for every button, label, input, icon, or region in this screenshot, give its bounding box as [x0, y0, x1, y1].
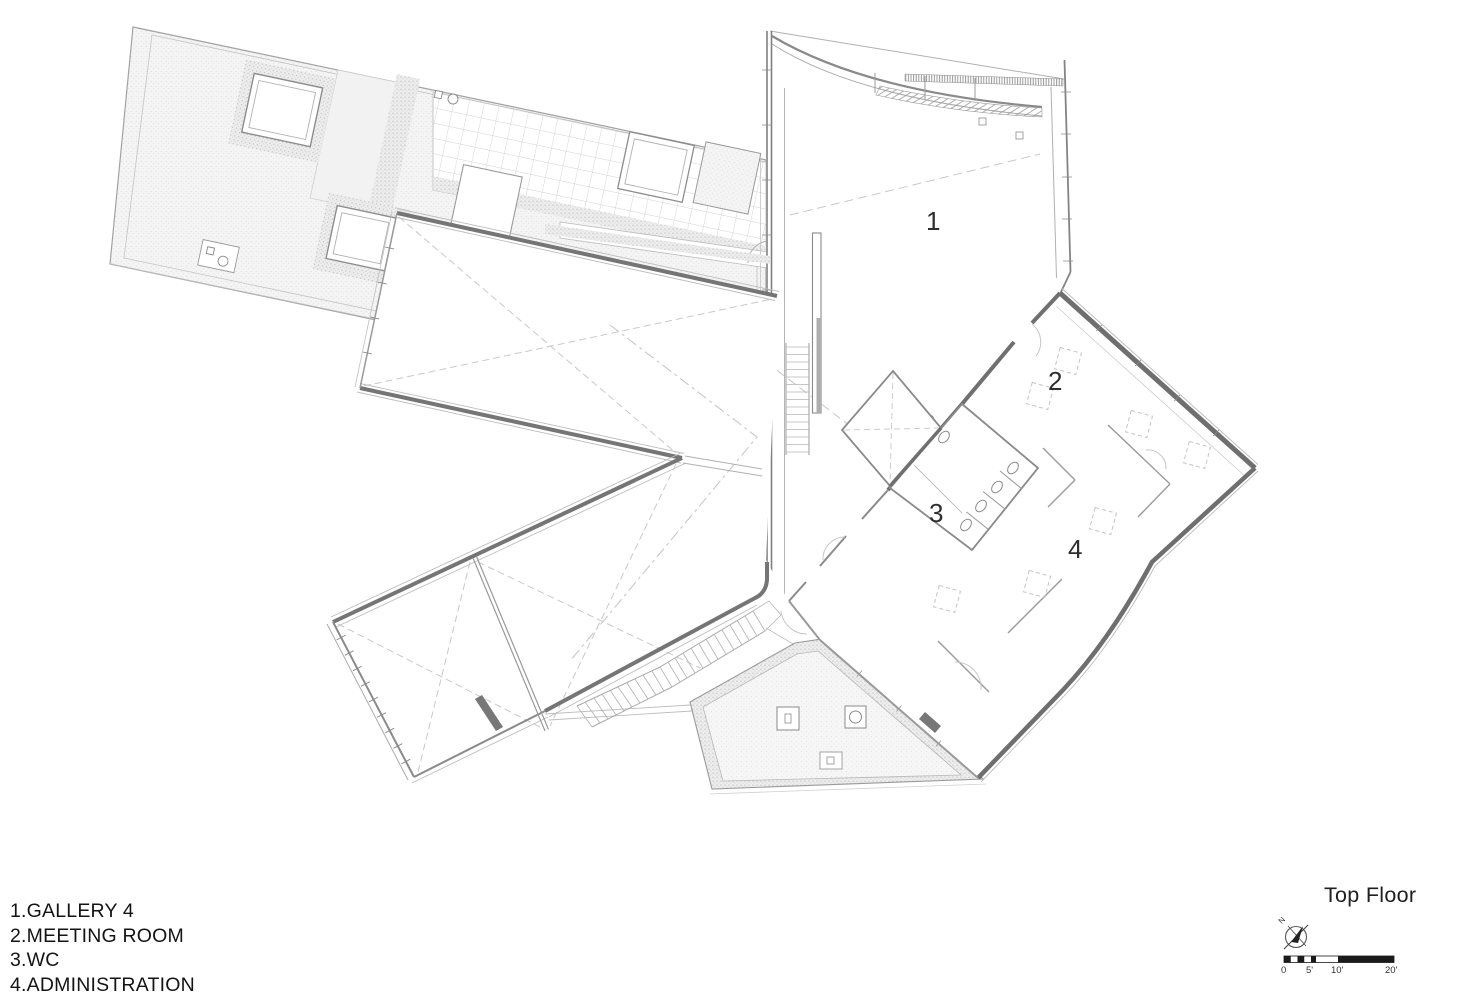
- floor-plan-sheet: 1 2 3 4 1.GALLERY 4 2.MEETING ROOM 3.WC …: [0, 0, 1459, 999]
- legend-item-administration: 4.ADMINISTRATION: [10, 973, 195, 998]
- scale-bar: [1284, 956, 1394, 963]
- legend: 1.GALLERY 4 2.MEETING ROOM 3.WC 4.ADMINI…: [10, 899, 195, 998]
- room-label-administration: 4: [1068, 534, 1083, 565]
- room-label-meeting-room: 2: [1048, 366, 1063, 397]
- scale-label-20: 20': [1385, 965, 1397, 976]
- room-label-gallery: 1: [926, 206, 941, 237]
- sheet-title: Top Floor: [1324, 883, 1416, 908]
- north-arrow-icon: [1284, 925, 1308, 949]
- room-label-wc: 3: [929, 498, 944, 529]
- legend-item-meeting-room: 2.MEETING ROOM: [10, 924, 195, 949]
- scale-label-0: 0: [1281, 965, 1286, 976]
- scale-label-10: 10': [1331, 965, 1343, 976]
- legend-item-wc: 3.WC: [10, 948, 195, 973]
- scale-label-5: 5': [1306, 965, 1313, 976]
- floor-plan-drawing: [0, 0, 1459, 999]
- legend-item-gallery: 1.GALLERY 4: [10, 899, 195, 924]
- roof-hatch-box: [693, 142, 761, 214]
